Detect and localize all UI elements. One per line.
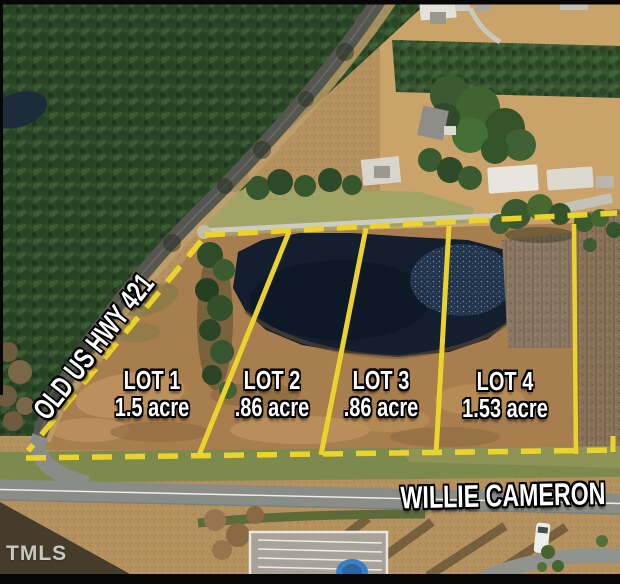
street-name-label: WILLIE CAMERON [400, 477, 606, 517]
lot3-label: LOT 3 .86 acre [344, 367, 419, 422]
lot1-label: LOT 1 1.5 acre [115, 367, 190, 422]
lot4-label: LOT 4 1.53 acre [462, 368, 548, 423]
lot3-acreage: .86 acre [344, 394, 419, 421]
lot2-label: LOT 2 .86 acre [235, 367, 310, 422]
lot2-name: LOT 2 [235, 367, 310, 394]
lot4-name: LOT 4 [462, 368, 548, 395]
lot1-acreage: 1.5 acre [115, 394, 190, 421]
lot3-name: LOT 3 [344, 367, 419, 394]
lot1-name: LOT 1 [115, 367, 190, 394]
aerial-lot-map: LOT 1 1.5 acre LOT 2 .86 acre LOT 3 .86 … [0, 0, 620, 584]
lot4-acreage: 1.53 acre [462, 395, 548, 422]
mobile-home [546, 166, 593, 190]
tmls-watermark: TMLS [6, 542, 67, 566]
mobile-home [487, 164, 539, 193]
lot4-right-boundary [574, 224, 576, 454]
lot2-acreage: .86 acre [235, 394, 310, 421]
